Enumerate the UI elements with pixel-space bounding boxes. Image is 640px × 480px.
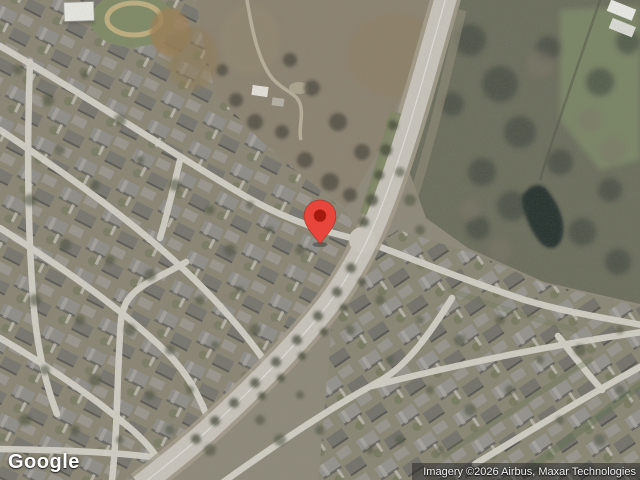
google-logo[interactable]: Google [8, 451, 80, 474]
imagery-attribution: Imagery ©2026 Airbus, Maxar Technologies [423, 466, 636, 478]
satellite-map[interactable]: Google Imagery ©2026 Airbus, Maxar Techn… [0, 0, 640, 480]
marker-pin [304, 200, 336, 244]
map-marker[interactable] [303, 199, 337, 247]
marker-dot [314, 209, 326, 221]
